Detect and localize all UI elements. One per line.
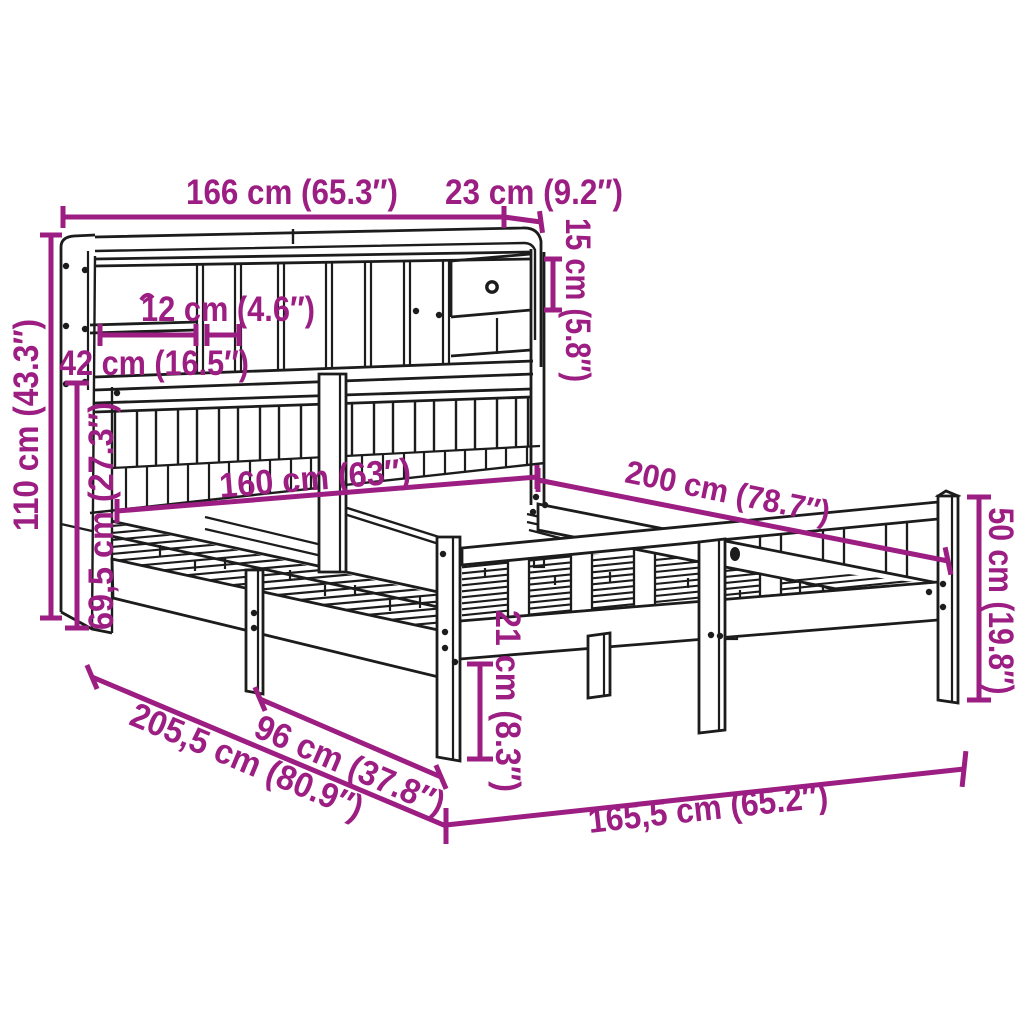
svg-text:15 cm (5.8″): 15 cm (5.8″) — [558, 218, 597, 382]
svg-text:23 cm (9.2″): 23 cm (9.2″) — [445, 173, 623, 212]
svg-text:110 cm (43.3″): 110 cm (43.3″) — [7, 319, 46, 531]
svg-text:166 cm (65.3″): 166 cm (65.3″) — [186, 173, 398, 212]
svg-text:50 cm (19.8″): 50 cm (19.8″) — [981, 508, 1020, 695]
svg-text:12 cm (4.6″): 12 cm (4.6″) — [141, 290, 315, 329]
svg-text:21 cm (8.3″): 21 cm (8.3″) — [488, 610, 527, 792]
svg-text:42 cm (16.5″): 42 cm (16.5″) — [59, 344, 249, 383]
